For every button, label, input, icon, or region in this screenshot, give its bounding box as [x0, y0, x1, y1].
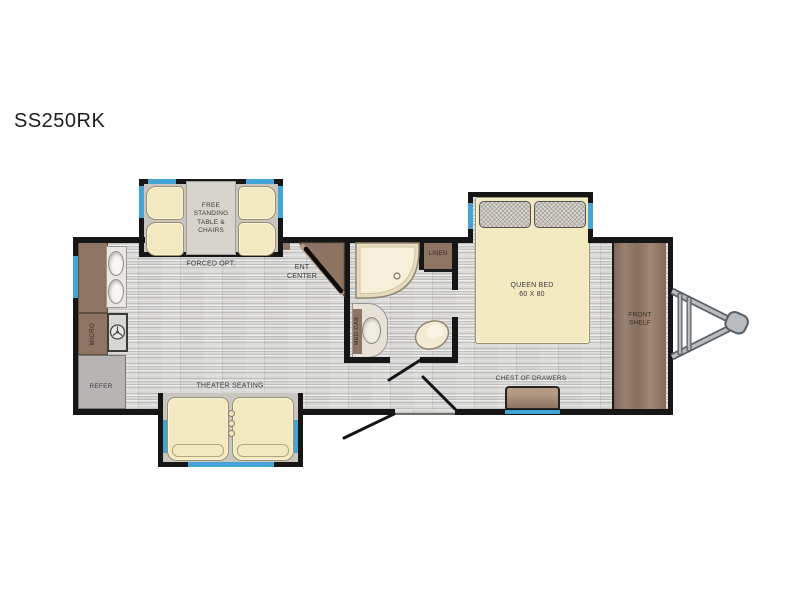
bedroom-door-swing — [423, 377, 455, 409]
floorplan-page: SS250RK FREE STANDING TABLE & CHAIRS FOR… — [0, 0, 800, 600]
toilet-icon — [411, 316, 453, 354]
shower-pan — [360, 247, 415, 294]
burner-icon — [111, 325, 125, 339]
bathroom-door-swing — [389, 359, 422, 380]
trailer-hitch-icon — [672, 291, 750, 357]
plan-shapes — [0, 0, 800, 600]
entry-door-swing — [344, 414, 394, 438]
